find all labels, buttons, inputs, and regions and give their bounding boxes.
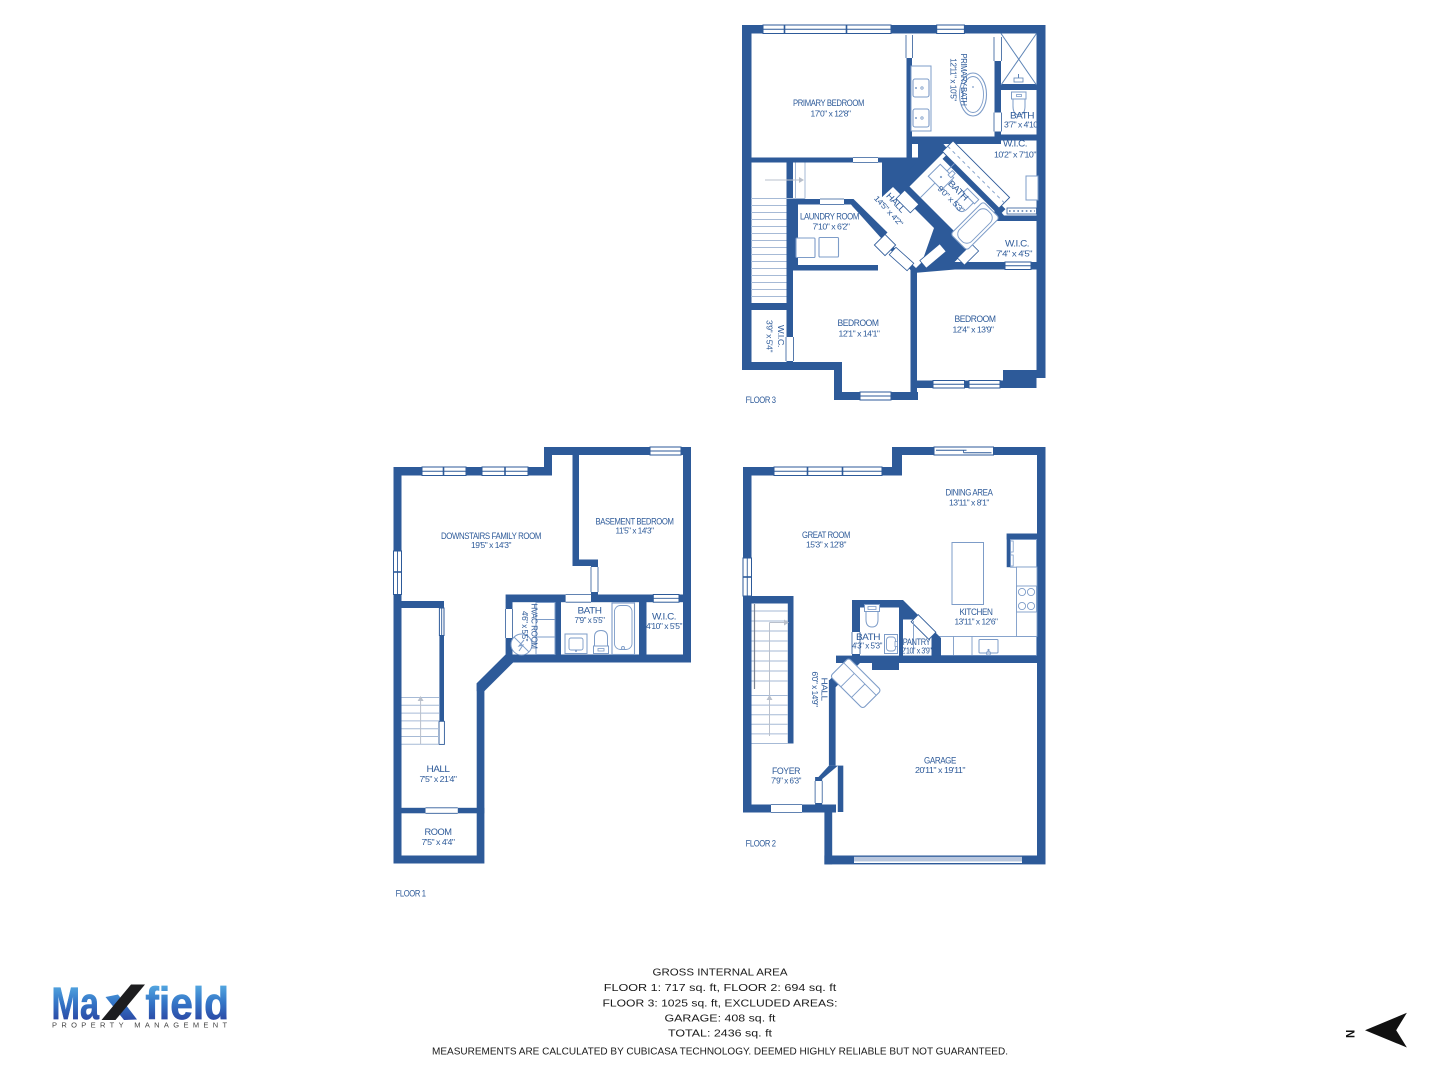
svg-text:12'11" x 10'5": 12'11" x 10'5" (949, 58, 958, 101)
svg-text:17'0" x 12'8": 17'0" x 12'8" (811, 110, 852, 119)
svg-text:GREAT ROOM: GREAT ROOM (802, 530, 850, 540)
svg-text:FLOOR 3: 1025 sq. ft, EXCLUDED: FLOOR 3: 1025 sq. ft, EXCLUDED AREAS: (603, 998, 838, 1009)
svg-text:BATH: BATH (578, 606, 602, 616)
svg-text:7'9" x 5'5": 7'9" x 5'5" (575, 616, 606, 625)
svg-text:BEDROOM: BEDROOM (838, 318, 879, 328)
svg-text:FLOOR 2: FLOOR 2 (746, 839, 776, 849)
svg-text:13'11" x 8'1": 13'11" x 8'1" (949, 499, 990, 508)
svg-text:4'3" x 5'3": 4'3" x 5'3" (852, 642, 883, 651)
svg-text:W.I.C.: W.I.C. (1003, 139, 1027, 149)
svg-text:BASEMENT BEDROOM: BASEMENT BEDROOM (596, 517, 674, 527)
svg-text:ROOM: ROOM (425, 827, 452, 837)
svg-text:7'9" x 6'3": 7'9" x 6'3" (771, 777, 802, 786)
svg-text:FOYER: FOYER (772, 766, 801, 776)
svg-text:7'5" x 4'4": 7'5" x 4'4" (422, 838, 456, 847)
svg-text:GARAGE: 408 sq. ft: GARAGE: 408 sq. ft (665, 1013, 776, 1024)
svg-text:7'5" x 21'4": 7'5" x 21'4" (420, 775, 458, 784)
svg-text:12'1" x 14'1": 12'1" x 14'1" (839, 330, 881, 339)
svg-text:7'10" x 6'2": 7'10" x 6'2" (813, 223, 851, 232)
svg-text:N: N (1346, 1030, 1358, 1038)
svg-text:DINING AREA: DINING AREA (946, 488, 993, 498)
svg-text:19'5" x 14'3": 19'5" x 14'3" (471, 541, 512, 550)
svg-text:FLOOR 3: FLOOR 3 (746, 395, 776, 405)
svg-text:BATH: BATH (1010, 111, 1034, 121)
svg-text:FLOOR 1: FLOOR 1 (396, 889, 426, 899)
svg-text:W.I.C.: W.I.C. (776, 325, 786, 347)
svg-text:FLOOR 1: 717 sq. ft, FLOOR 2:: FLOOR 1: 717 sq. ft, FLOOR 2: 694 sq. ft (604, 983, 837, 994)
svg-text:W.I.C.: W.I.C. (1005, 239, 1029, 249)
svg-text:PRIMARY BEDROOM: PRIMARY BEDROOM (793, 98, 864, 108)
svg-text:4'6" x 5'5": 4'6" x 5'5" (520, 611, 529, 642)
svg-text:PROPERTY MANAGEMENT: PROPERTY MANAGEMENT (52, 1020, 231, 1029)
svg-text:BEDROOM: BEDROOM (955, 314, 996, 324)
svg-text:15'3" x 12'8": 15'3" x 12'8" (806, 541, 847, 550)
svg-text:BATH: BATH (856, 632, 880, 642)
svg-text:7'4" x 4'5": 7'4" x 4'5" (996, 250, 1033, 259)
svg-text:LAUNDRY ROOM: LAUNDRY ROOM (800, 212, 859, 222)
svg-text:20'11" x 19'11": 20'11" x 19'11" (915, 766, 966, 775)
svg-text:13'11" x 12'6": 13'11" x 12'6" (955, 618, 999, 627)
svg-text:W.I.C.: W.I.C. (652, 612, 676, 622)
svg-text:MEASUREMENTS ARE CALCULATED BY: MEASUREMENTS ARE CALCULATED BY CUBICASA … (432, 1046, 1008, 1057)
svg-text:2'10" x 3'9": 2'10" x 3'9" (902, 647, 933, 656)
svg-text:6'0" x 14'9": 6'0" x 14'9" (810, 672, 819, 708)
svg-text:HALL: HALL (427, 764, 450, 774)
svg-text:12'4" x 13'9": 12'4" x 13'9" (953, 326, 995, 335)
svg-text:HALL: HALL (820, 678, 830, 702)
svg-text:PRIMARY BATH: PRIMARY BATH (959, 54, 969, 106)
svg-text:KITCHEN: KITCHEN (960, 607, 993, 617)
svg-text:PANTRY: PANTRY (903, 637, 931, 647)
svg-text:HVAC ROOM: HVAC ROOM (530, 604, 540, 649)
svg-text:11'5" x 14'3": 11'5" x 14'3" (616, 527, 655, 536)
svg-text:GROSS INTERNAL AREA: GROSS INTERNAL AREA (653, 968, 788, 979)
svg-text:3'9" x 5'4": 3'9" x 5'4" (765, 320, 774, 353)
svg-text:GARAGE: GARAGE (924, 756, 956, 766)
svg-text:DOWNSTAIRS FAMILY ROOM: DOWNSTAIRS FAMILY ROOM (441, 531, 541, 541)
svg-text:3'7" x 4'10": 3'7" x 4'10" (1004, 121, 1041, 130)
svg-text:TOTAL: 2436 sq. ft: TOTAL: 2436 sq. ft (668, 1028, 772, 1039)
svg-text:4'10" x 5'5": 4'10" x 5'5" (646, 622, 683, 631)
svg-text:10'2" x 7'10": 10'2" x 7'10" (994, 151, 1037, 160)
